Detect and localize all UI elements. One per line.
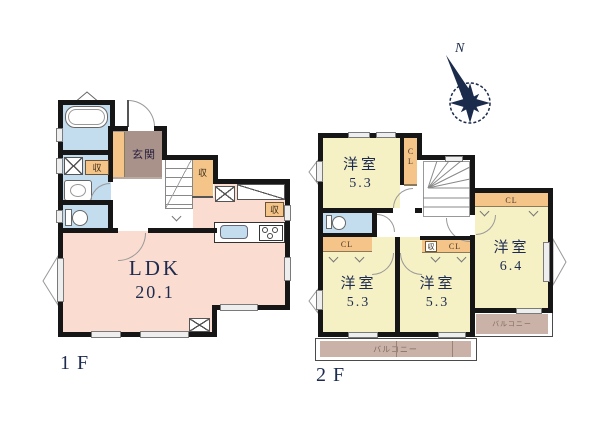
window: [284, 205, 291, 221]
toilet1-tank: [65, 209, 72, 226]
wall: [58, 228, 118, 233]
floor-plan-canvas: 収 収: [0, 0, 600, 433]
bedroom2-label: 洋室 5.3: [322, 254, 395, 332]
stair-down-arrow: [172, 212, 182, 222]
stove-burner: [262, 227, 268, 233]
storage-label: 収: [428, 242, 435, 252]
ldk-name: LDK: [129, 255, 181, 281]
wall: [58, 100, 115, 105]
ldk-label: LDK 20.1: [95, 254, 215, 304]
wall: [285, 179, 290, 310]
bedroom3-name: 洋室: [419, 275, 455, 294]
entrance-step-line: [113, 177, 162, 179]
bedroom1-name: 洋室: [343, 156, 379, 175]
wall: [213, 179, 290, 184]
window: [91, 331, 121, 338]
bedroom4-area: 6.4: [500, 258, 524, 276]
toilet2-door-swing: [377, 214, 395, 232]
floor2-title: 2F: [316, 364, 351, 387]
ldk-floor-passage: [193, 197, 214, 232]
window: [56, 128, 63, 142]
wall: [318, 133, 422, 138]
wall: [58, 150, 113, 155]
wall: [58, 200, 113, 205]
washroom-storage-label: 収: [92, 161, 101, 174]
window: [348, 132, 370, 138]
window: [376, 132, 396, 138]
balcony-label: バルコニー: [492, 319, 532, 329]
bedroom3-closet-storage: 収: [425, 241, 437, 252]
underfloor-storage-hatch: [189, 318, 210, 332]
stove-burner: [267, 233, 273, 239]
closet-front-line: [404, 184, 417, 186]
refrigerator-space: [215, 186, 235, 202]
floor1-title: 1F: [60, 352, 95, 375]
vanity-sink-bowl: [70, 184, 86, 197]
stair-storage-label: 収: [193, 166, 212, 179]
window: [445, 156, 463, 162]
wall: [318, 208, 393, 213]
balcony-right: バルコニー: [476, 314, 548, 334]
bedroom4-label: 洋室 6.4: [475, 209, 548, 306]
bedroom2-name: 洋室: [340, 275, 376, 294]
storage-front-line: [192, 196, 213, 198]
wall: [58, 332, 217, 337]
balcony-divider: [396, 341, 397, 357]
entrance-label: 玄関: [124, 146, 164, 162]
bedroom3-label: 洋室 5.3: [400, 254, 475, 332]
window: [56, 210, 63, 223]
bedroom4-name: 洋室: [493, 239, 529, 258]
balcony-divider: [452, 341, 453, 357]
window: [56, 158, 63, 174]
bedroom2-closet-label: CL: [322, 237, 372, 251]
kitchen-counter-top: [237, 184, 285, 200]
bedroom4-bay-window: [553, 239, 567, 285]
window: [516, 308, 542, 314]
bedroom1-label: 洋室 5.3: [322, 140, 400, 208]
compass-rose: N: [435, 35, 515, 127]
bedroom1-closet-label: CL: [404, 142, 417, 172]
bedroom3-area: 5.3: [426, 294, 450, 312]
toilet2-bowl: [332, 216, 346, 230]
kitchen-storage: 収: [265, 202, 284, 217]
staircase-2f: [423, 161, 470, 217]
wall: [212, 305, 217, 337]
wall: [148, 228, 217, 233]
entrance-door-swing: [128, 100, 155, 127]
wall: [162, 155, 218, 160]
window: [348, 332, 378, 338]
ldk-area: 20.1: [135, 281, 175, 304]
closet-front-line: [322, 251, 372, 252]
window: [438, 332, 466, 338]
compass-north-label: N: [454, 41, 465, 56]
window: [220, 304, 258, 311]
bedroom4-closet-label: CL: [475, 193, 548, 207]
kitchen-sink: [220, 225, 248, 239]
entrance-door-leaf: [127, 100, 129, 127]
washroom-storage: 収: [85, 160, 109, 175]
washing-machine-space: [64, 157, 83, 175]
bedroom3-closet-label: CL: [440, 240, 470, 253]
wall: [415, 208, 422, 213]
bay-window-glass: [57, 258, 64, 302]
window: [284, 257, 291, 281]
stove-burner: [272, 227, 278, 233]
staircase-1f: [165, 158, 193, 209]
kitchen-storage-label: 収: [270, 203, 279, 216]
toilet1-bowl: [72, 210, 88, 226]
bathtub-inner: [68, 109, 105, 125]
window: [140, 331, 189, 338]
bedroom2-area: 5.3: [347, 294, 371, 312]
bedroom1-area: 5.3: [349, 175, 373, 193]
